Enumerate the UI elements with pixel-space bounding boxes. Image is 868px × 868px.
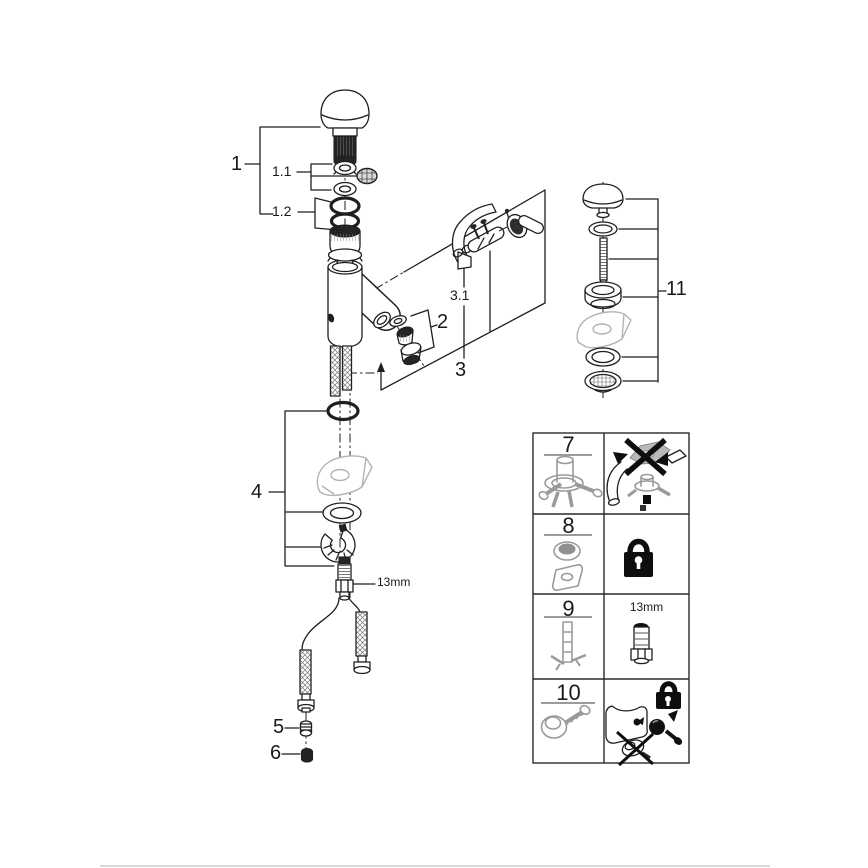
legend-number-10: 10: [533, 682, 604, 704]
wedge-gasket-ghost: [317, 456, 372, 495]
callout-11: 11: [666, 279, 687, 299]
callout-1-2: 1.2: [272, 204, 291, 218]
callout-4: 4: [251, 482, 262, 502]
no-preassembly-icon: [607, 440, 686, 511]
drain-rod: [600, 238, 607, 286]
callout-bracket-4: [269, 411, 375, 584]
legend-number-7: 7: [533, 434, 604, 456]
aerator-parts: [388, 310, 437, 366]
drain-flange: [585, 282, 621, 309]
stud-13mm-icon: [631, 623, 652, 664]
stud-size-label: 13mm: [377, 576, 410, 588]
lever-assembly: [452, 204, 538, 269]
drain-wedge-ghost: [577, 312, 631, 348]
drain-ring: [586, 348, 620, 366]
callout-1-1: 1.1: [272, 164, 291, 178]
cartridge: [328, 225, 362, 263]
callout-3: 3: [455, 360, 466, 380]
direction-arrow: [377, 362, 385, 372]
legend-number-9: 9: [533, 598, 604, 620]
cap-washer-upper: [334, 162, 356, 175]
callout-2: 2: [437, 312, 448, 332]
legend-number-8: 8: [533, 515, 604, 537]
callout-1: 1: [231, 154, 242, 174]
push-button-cap: [321, 90, 369, 164]
rod-tool-icon: [551, 622, 586, 670]
callout-6: 6: [270, 743, 281, 763]
callout-5: 5: [273, 717, 284, 737]
plug-clip-icon: [553, 542, 583, 590]
mounting-nut: [357, 169, 377, 185]
padlock-icon: [624, 542, 653, 578]
drain-plug-cap: [583, 184, 623, 218]
fixing-set-icon: [538, 457, 603, 508]
cap-washer-lower: [334, 183, 356, 196]
drain-strainer: [585, 372, 621, 393]
faucet-body: [327, 260, 394, 396]
legend-note-13mm: 13mm: [604, 601, 689, 613]
locked-knob-icon: [606, 684, 684, 765]
exploded-parts-diagram: 1 1.1 1.2 2 3.1 3 4 5 6 11 13mm 7 8 9 10…: [0, 0, 868, 868]
drain-washer: [589, 222, 617, 236]
part-6-plug: [282, 749, 313, 763]
base-o-ring: [328, 403, 358, 420]
grommet-screw-icon: [542, 704, 592, 738]
lever-handle: [503, 211, 538, 241]
base-washer: [323, 503, 361, 523]
hose-right: [354, 612, 370, 674]
supply-hoses: [298, 598, 370, 712]
drain-set: [577, 184, 666, 392]
callout-3-1: 3.1: [450, 288, 469, 302]
diagram-artwork: [0, 0, 868, 868]
hose-left: [298, 650, 314, 712]
supply-tails: [331, 346, 352, 396]
part-5-fitting: [285, 721, 312, 736]
